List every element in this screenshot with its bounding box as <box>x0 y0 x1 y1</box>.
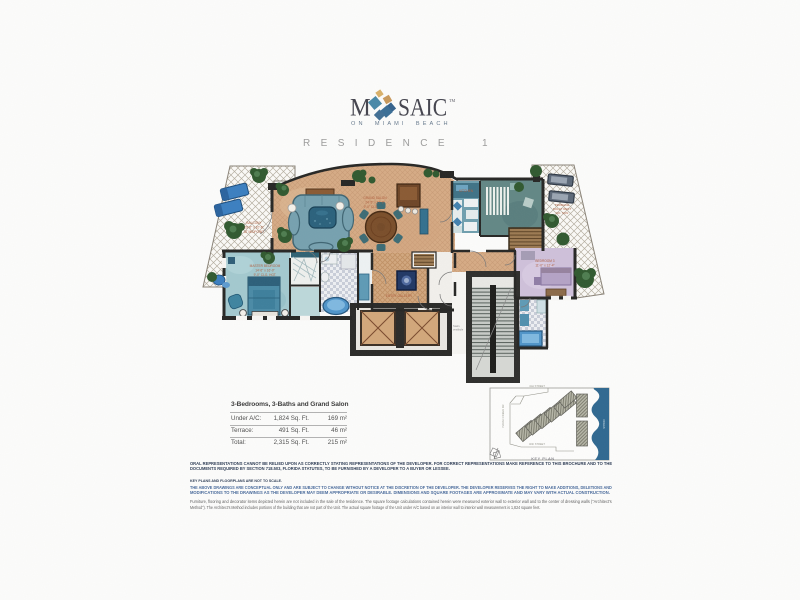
svg-text:INDIAN CREEK DR: INDIAN CREEK DR <box>501 404 505 427</box>
svg-text:Stairs: Stairs <box>453 324 460 328</box>
svg-text:11'-0" x 12'-4": 11'-0" x 12'-4" <box>535 264 554 268</box>
svg-text:BALCONY: BALCONY <box>246 221 262 225</box>
svg-text:MASTER BEDROOM: MASTER BEDROOM <box>250 264 281 268</box>
svg-text:14'-6" x 16'-0": 14'-6" x 16'-0" <box>255 269 275 273</box>
svg-text:41st STREET: 41st STREET <box>529 384 545 388</box>
svg-text:40th STREET: 40th STREET <box>529 442 545 446</box>
svg-text:OCEAN: OCEAN <box>602 419 606 428</box>
svg-text:BEDROOM 3: BEDROOM 3 <box>535 259 554 263</box>
svg-text:GO. SUN: GO. SUN <box>556 211 569 215</box>
svg-text:9'-0" CLG. HGT.: 9'-0" CLG. HGT. <box>254 273 277 277</box>
svg-text:29'-0" x 10'-6": 29'-0" x 10'-6" <box>244 226 264 230</box>
svg-text:24'-5" x 17'-0": 24'-5" x 17'-0" <box>365 201 385 205</box>
svg-text:ENTRY GALLERY: ENTRY GALLERY <box>386 294 413 298</box>
svg-text:9'-0" CLG.: 9'-0" CLG. <box>364 205 379 209</box>
svg-text:KITCHEN: KITCHEN <box>459 189 474 193</box>
svg-text:AT MIDPOINT: AT MIDPOINT <box>244 230 264 234</box>
svg-text:vestibule: vestibule <box>453 328 464 332</box>
svg-text:GRAND SALON: GRAND SALON <box>363 196 387 200</box>
